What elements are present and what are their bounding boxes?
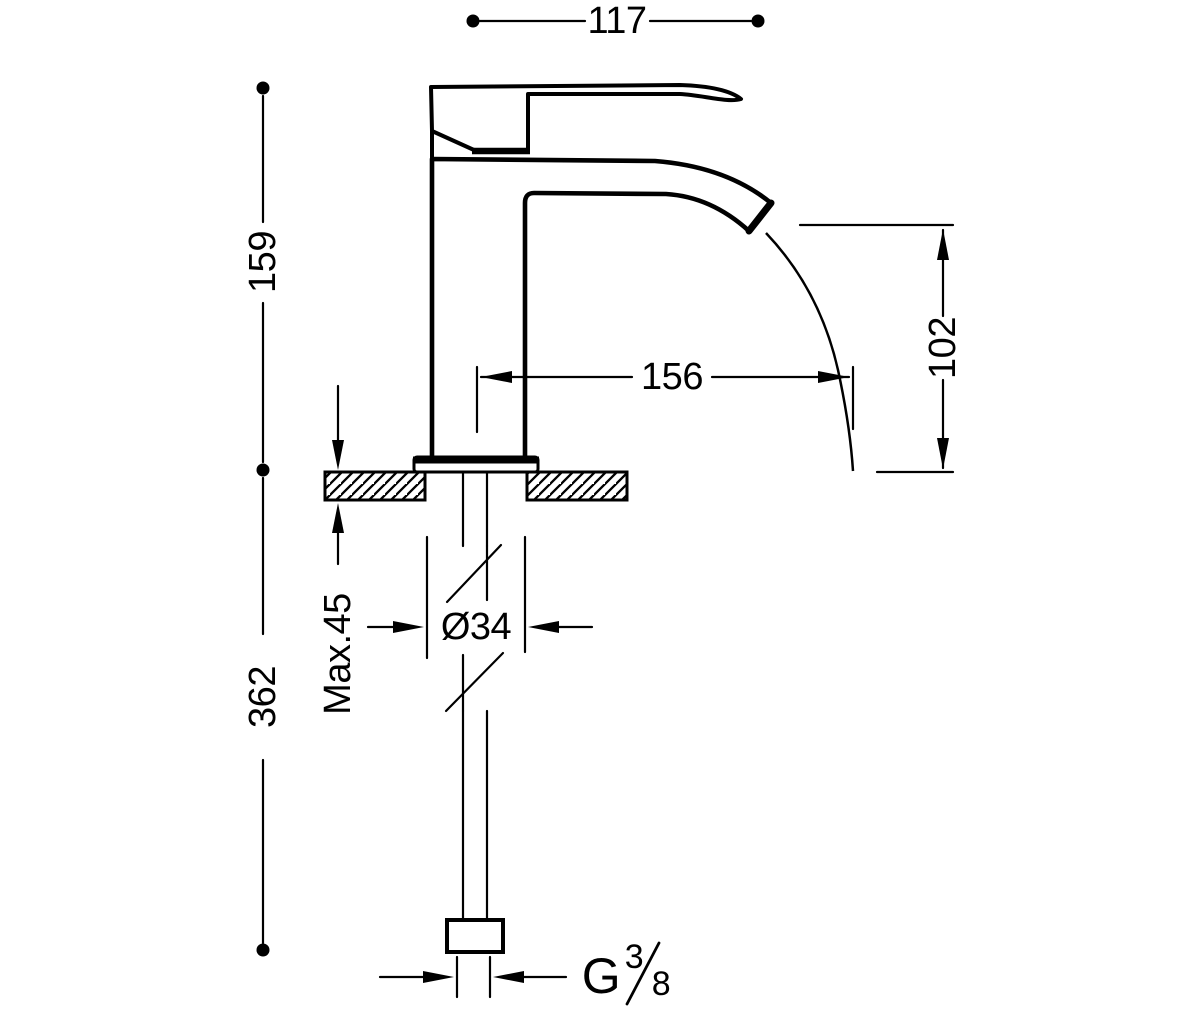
- thread-numerator-label: 3: [625, 938, 643, 976]
- dimension-endpoint-dot: [257, 944, 270, 957]
- faucet-dimension-drawing: 117 159 362 156 102: [0, 0, 1200, 1024]
- dimension-hole-diameter: Ø34: [368, 537, 592, 658]
- supply-pipe: [446, 472, 503, 952]
- thread-denominator-label: 8: [652, 965, 670, 1003]
- dimension-height-to-spout: 159: [242, 82, 284, 477]
- dimension-max45-label: Max.45: [317, 593, 359, 715]
- countertop-left-hatch: [325, 472, 425, 500]
- faucet-handle-outline: [431, 85, 741, 150]
- arrowhead-right: [393, 621, 424, 633]
- countertop-section: [325, 472, 627, 500]
- dimension-stream-projection: 156: [477, 356, 853, 432]
- dimension-159-label: 159: [242, 231, 284, 293]
- water-stream-curve: [766, 233, 853, 471]
- pipe-break-mark-lower: [446, 653, 503, 711]
- dimension-156-label: 156: [641, 356, 703, 398]
- countertop-right-hatch: [527, 472, 627, 500]
- dimension-117-label: 117: [587, 0, 646, 42]
- arrowhead-down: [332, 440, 344, 470]
- dimension-outlet-height: 102: [800, 225, 964, 472]
- dimension-102-label: 102: [922, 317, 964, 379]
- pipe-connector-nut: [447, 920, 503, 952]
- dimension-total-height-below: 362: [242, 478, 284, 957]
- arrowhead-right: [423, 971, 454, 983]
- thread-letter-label: G: [582, 948, 620, 1004]
- dimension-endpoint-dot: [257, 464, 270, 477]
- faucet-body-spout-outline: [432, 159, 771, 458]
- faucet-technical-drawing-page: 117 159 362 156 102: [0, 0, 1200, 1024]
- dimension-endpoint-dot: [752, 15, 765, 28]
- dimension-endpoint-dot: [257, 82, 270, 95]
- dimension-thread-size: G 3 8: [380, 938, 670, 1004]
- dimension-max-deck-thickness: Max.45: [317, 386, 359, 715]
- pipe-break-mark-upper: [447, 545, 501, 602]
- faucet-outline: [413, 85, 853, 472]
- arrowhead-up: [332, 503, 344, 533]
- dimension-362-label: 362: [242, 666, 284, 728]
- dimension-endpoint-dot: [467, 15, 480, 28]
- dimension-spout-reach: 117: [467, 0, 765, 42]
- dimension-d34-label: Ø34: [441, 606, 512, 648]
